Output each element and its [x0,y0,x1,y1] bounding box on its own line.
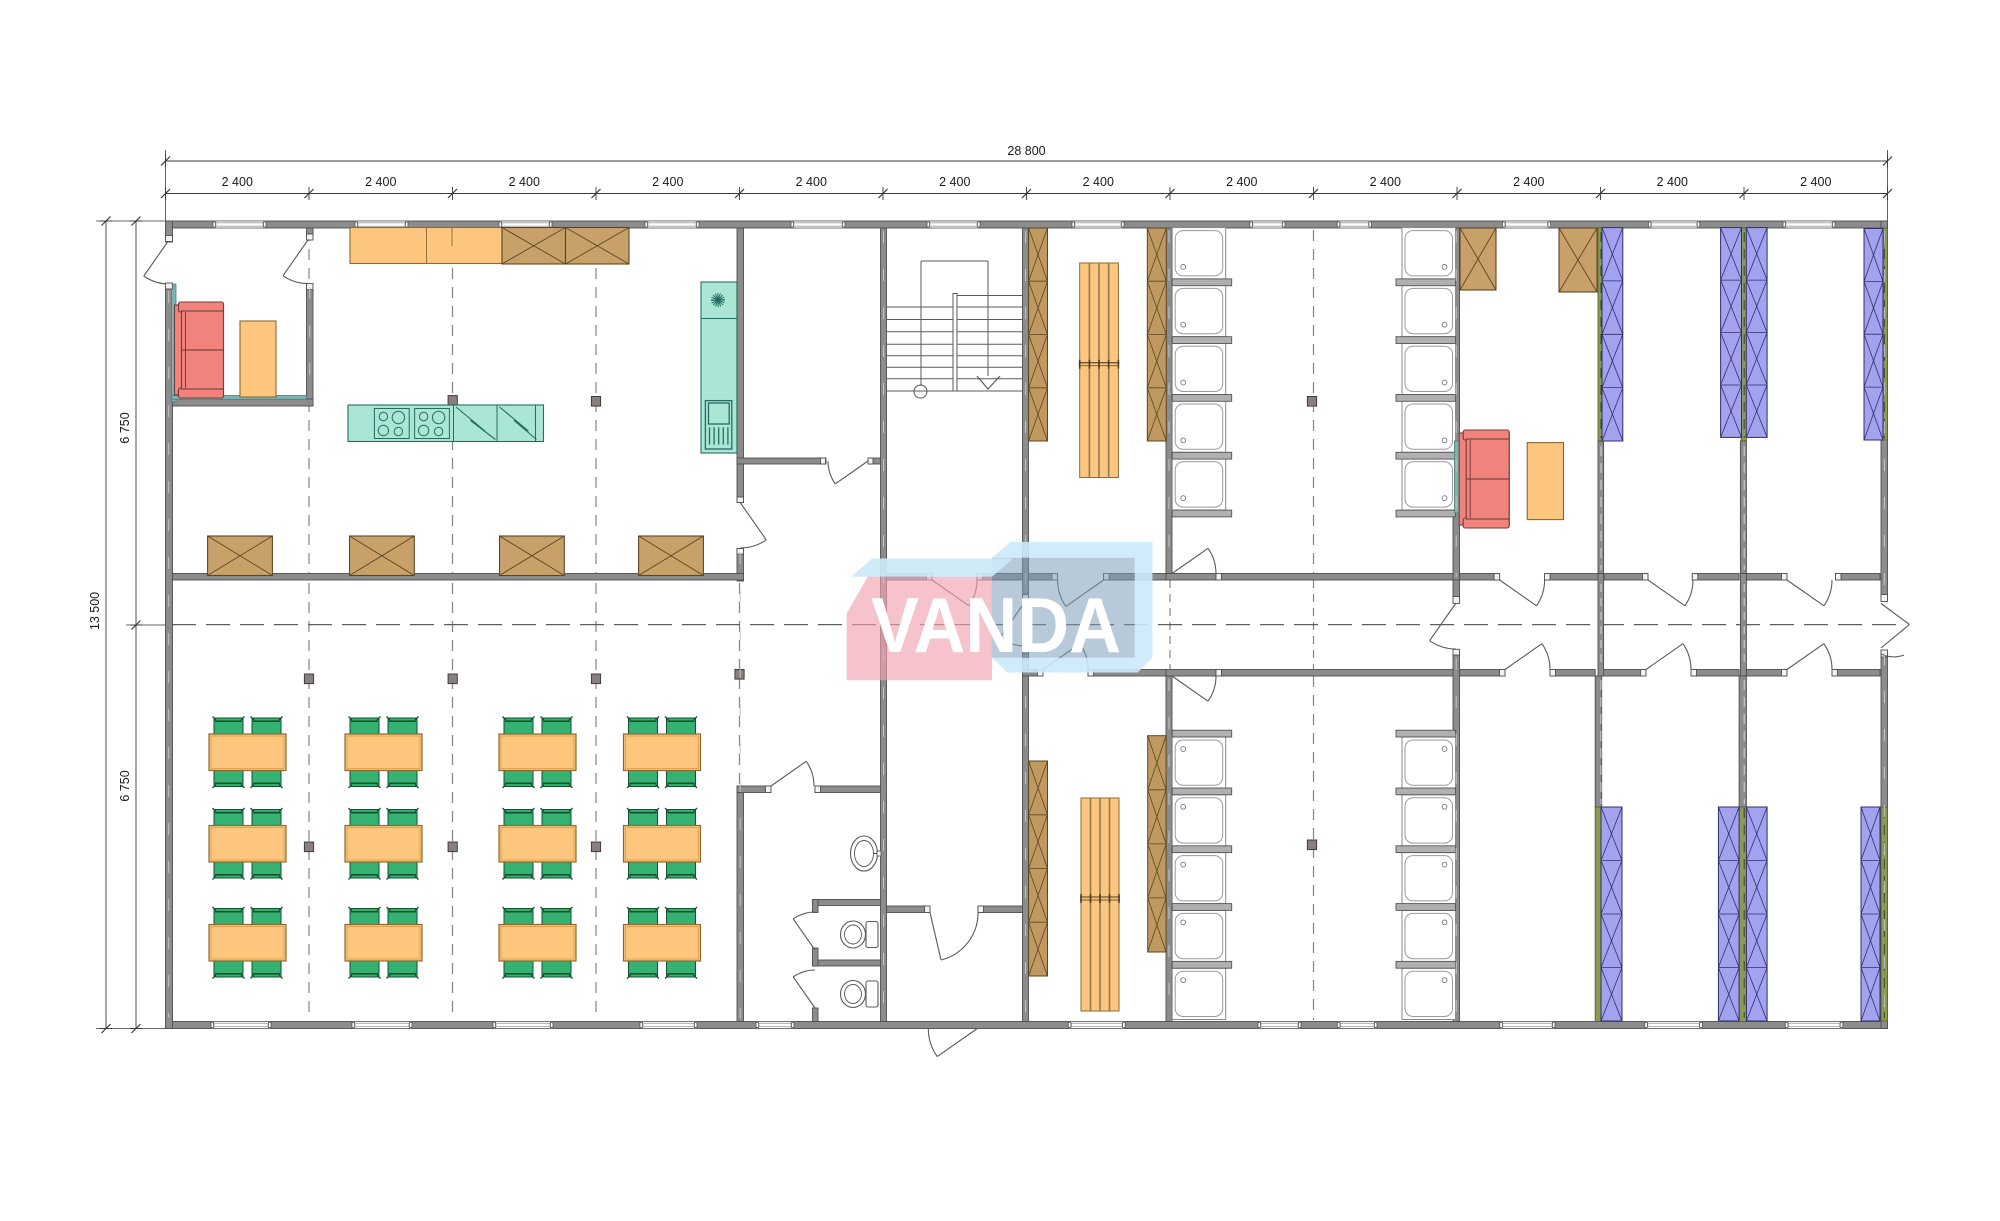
svg-text:2 400: 2 400 [796,175,827,189]
svg-text:2 400: 2 400 [939,175,970,189]
svg-text:2 400: 2 400 [365,175,396,189]
svg-text:2 400: 2 400 [1657,175,1688,189]
svg-text:2 400: 2 400 [1800,175,1831,189]
svg-text:13 500: 13 500 [88,592,102,630]
svg-text:6 750: 6 750 [118,412,132,443]
svg-text:2 400: 2 400 [1513,175,1544,189]
svg-text:2 400: 2 400 [1370,175,1401,189]
svg-text:2 400: 2 400 [1226,175,1257,189]
svg-text:2 400: 2 400 [222,175,253,189]
svg-text:VANDA: VANDA [871,581,1121,669]
svg-text:2 400: 2 400 [652,175,683,189]
svg-text:28 800: 28 800 [1007,144,1045,158]
svg-text:6 750: 6 750 [118,770,132,801]
svg-text:2 400: 2 400 [509,175,540,189]
svg-text:2 400: 2 400 [1083,175,1114,189]
